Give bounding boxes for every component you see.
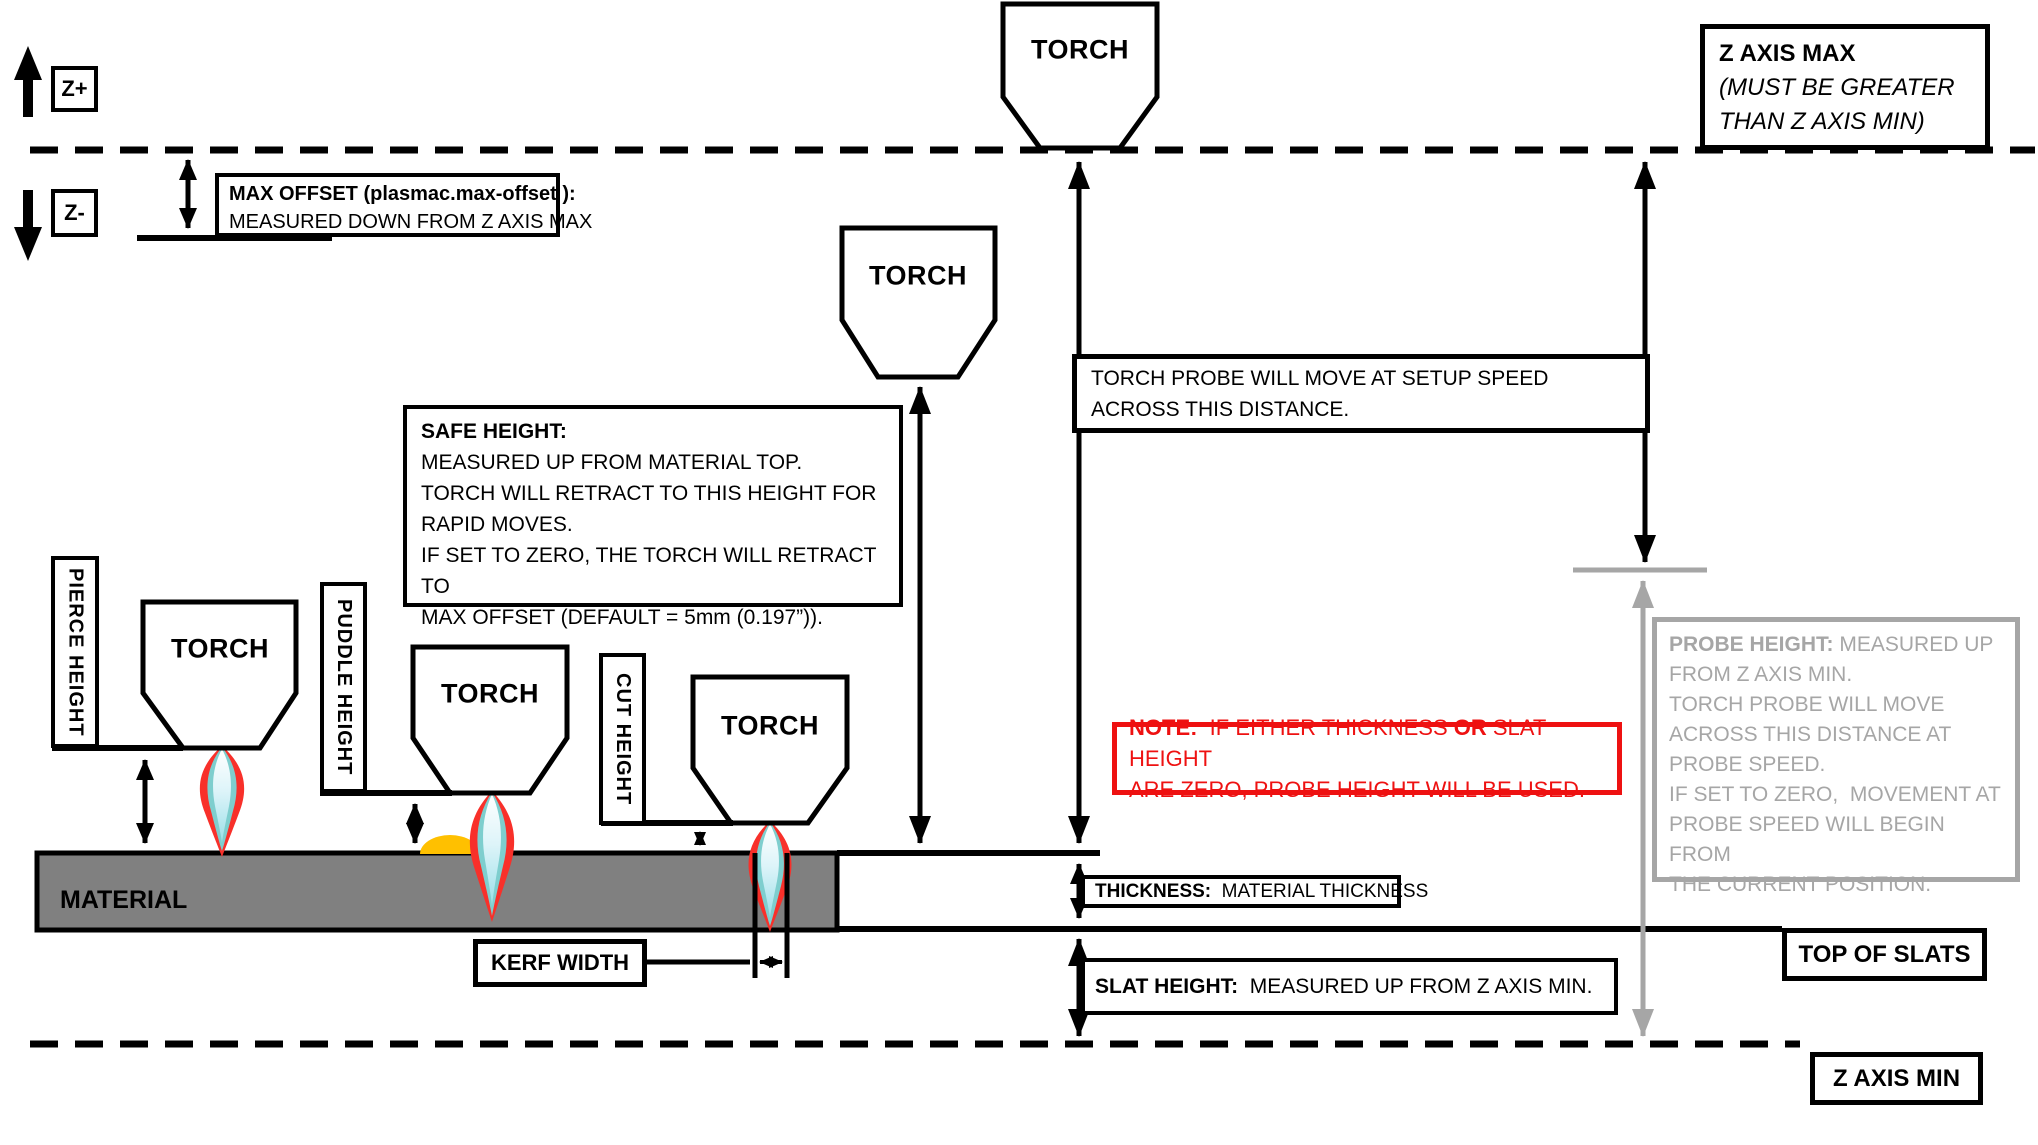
material-label: MATERIAL — [60, 886, 187, 915]
note-bold-or: OR — [1454, 715, 1487, 740]
z-plus-arrow-icon — [14, 46, 42, 117]
max-offset-description: MEASURED DOWN FROM Z AXIS MAX — [229, 208, 546, 236]
torch-at-cut-height — [693, 677, 847, 823]
thickness-callout: THICKNESS: MATERIAL THICKNESS — [1081, 875, 1401, 908]
kerf-width-label: KERF WIDTH — [491, 950, 629, 976]
z-plus-label: Z+ — [61, 76, 87, 102]
z-axis-max-title: Z AXIS MAX — [1719, 37, 1971, 71]
z-axis-max-note-line2: THAN Z AXIS MIN) — [1719, 105, 1971, 139]
puddle-height-label-box: PUDDLE HEIGHT — [320, 582, 367, 793]
safe-height-line: RAPID MOVES. — [421, 509, 885, 540]
note-line2: ARE ZERO, PROBE HEIGHT WILL BE USED. — [1129, 774, 1605, 805]
safe-height-title: SAFE HEIGHT: — [421, 416, 885, 447]
probe-height-line: ACROSS THIS DISTANCE AT — [1669, 720, 2003, 750]
top-of-slats-label-box: TOP OF SLATS — [1782, 928, 1987, 981]
z-minus-label: Z- — [64, 200, 85, 226]
kerf-width-label-box: KERF WIDTH — [473, 939, 647, 987]
pierce-height-label: PIERCE HEIGHT — [64, 568, 87, 737]
torch-cut-height-label: TORCH — [721, 711, 819, 742]
thickness-rest: MATERIAL THICKNESS — [1211, 881, 1428, 903]
probe-height-line: TORCH PROBE WILL MOVE — [1669, 690, 2003, 720]
torch-at-z-max — [1003, 4, 1157, 148]
probe-height-title: PROBE HEIGHT: — [1669, 633, 1834, 656]
note-callout: NOTE: IF EITHER THICKNESS OR SLAT HEIGHT… — [1112, 722, 1622, 795]
probe-height-title-rest: MEASURED UP — [1834, 633, 1994, 656]
torch-at-pierce-height — [143, 602, 296, 748]
z-axis-min-label-box: Z AXIS MIN — [1810, 1052, 1983, 1105]
torch-at-safe-height — [842, 228, 995, 377]
slat-height-title: SLAT HEIGHT: — [1095, 975, 1238, 999]
max-offset-title: MAX OFFSET (plasmac.max-offset ): — [229, 180, 546, 208]
thickness-title: THICKNESS: — [1095, 881, 1211, 903]
cut-height-label-box: CUT HEIGHT — [599, 653, 646, 825]
probe-height-line: IF SET TO ZERO, MOVEMENT AT — [1669, 780, 2003, 810]
probe-height-line: FROM Z AXIS MIN. — [1669, 660, 2003, 690]
note-line1: NOTE: IF EITHER THICKNESS OR SLAT HEIGHT — [1129, 712, 1605, 774]
puddle-height-label: PUDDLE HEIGHT — [332, 599, 355, 775]
probe-height-line: THE CURRENT POSITION. — [1669, 870, 2003, 900]
torch-pierce-height-label: TORCH — [171, 634, 269, 665]
probe-height-line: PROBE SPEED WILL BEGIN FROM — [1669, 810, 2003, 870]
probe-height-callout: PROBE HEIGHT: MEASURED UP FROM Z AXIS MI… — [1652, 617, 2020, 882]
z-axis-max-note-line1: (MUST BE GREATER — [1719, 71, 1971, 105]
z-minus-label-box: Z- — [51, 189, 98, 237]
z-minus-arrow-icon — [14, 190, 42, 261]
z-axis-max-callout: Z AXIS MAX (MUST BE GREATER THAN Z AXIS … — [1700, 24, 1990, 150]
diagram-canvas — [0, 0, 2038, 1145]
torch-at-puddle-height — [413, 647, 567, 793]
note-bold-intro: NOTE: — [1129, 715, 1197, 740]
safe-height-line: MAX OFFSET (DEFAULT = 5mm (0.197”)). — [421, 602, 885, 633]
torch-puddle-height-label: TORCH — [441, 679, 539, 710]
probe-height-line: PROBE SPEED. — [1669, 750, 2003, 780]
slat-height-rest: MEASURED UP FROM Z AXIS MIN. — [1238, 975, 1592, 999]
setup-speed-callout: TORCH PROBE WILL MOVE AT SETUP SPEED ACR… — [1072, 354, 1650, 433]
plasmac-height-diagram: Z+ Z- MAX OFFSET (plasmac.max-offset ): … — [0, 0, 2038, 1145]
torch-safe-height-label: TORCH — [869, 261, 967, 292]
probe-height-title-line: PROBE HEIGHT: MEASURED UP — [1669, 630, 2003, 660]
cut-height-label: CUT HEIGHT — [611, 673, 634, 805]
slat-height-callout: SLAT HEIGHT: MEASURED UP FROM Z AXIS MIN… — [1081, 958, 1618, 1015]
z-axis-min-label: Z AXIS MIN — [1833, 1065, 1960, 1093]
max-offset-callout: MAX OFFSET (plasmac.max-offset ): MEASUR… — [215, 173, 560, 237]
pierce-height-label-box: PIERCE HEIGHT — [51, 556, 99, 748]
plasma-flame-pierce — [200, 746, 244, 857]
setup-speed-line1: TORCH PROBE WILL MOVE AT SETUP SPEED — [1091, 363, 1631, 394]
z-plus-label-box: Z+ — [51, 66, 98, 112]
note-text-a: IF EITHER THICKNESS — [1197, 715, 1453, 740]
safe-height-line: TORCH WILL RETRACT TO THIS HEIGHT FOR — [421, 478, 885, 509]
safe-height-line: MEASURED UP FROM MATERIAL TOP. — [421, 447, 885, 478]
top-of-slats-label: TOP OF SLATS — [1798, 941, 1970, 969]
safe-height-callout: SAFE HEIGHT: MEASURED UP FROM MATERIAL T… — [403, 405, 903, 607]
safe-height-line: IF SET TO ZERO, THE TORCH WILL RETRACT T… — [421, 540, 885, 602]
torch-z-max-label: TORCH — [1031, 35, 1129, 66]
setup-speed-line2: ACROSS THIS DISTANCE. — [1091, 394, 1631, 425]
